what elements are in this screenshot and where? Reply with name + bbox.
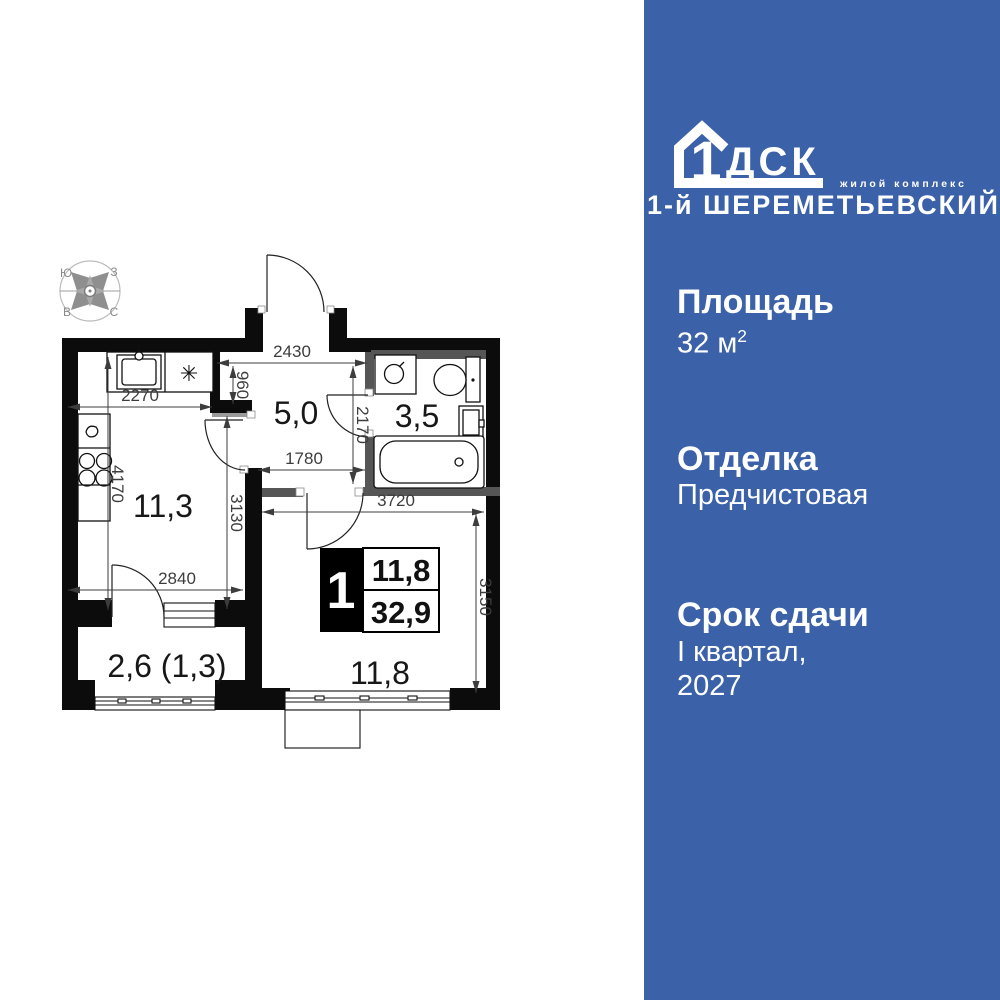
logo-one: 1 — [690, 129, 721, 192]
developer-logo: 1 ДСК жилой комплекс 1-й ШЕРЕМЕТЬЕВСКИЙ — [644, 120, 1000, 232]
logo-letters: ДСК — [726, 140, 820, 184]
room-label-bathroom: 3,5 — [395, 398, 439, 434]
dim-kitchen-bottom-width: 2840 — [158, 569, 196, 588]
entrance-door — [267, 255, 324, 312]
compass-icon: Ю З В С — [60, 261, 120, 321]
compass-sw: В — [63, 305, 71, 319]
dim-hall-top-width: 2430 — [273, 342, 311, 361]
dim-kitchen-height: 4170 — [108, 465, 127, 503]
dim-hall-height: 3130 — [227, 494, 246, 532]
floor-plan: ✳ — [0, 0, 644, 1000]
balcony-inner-window — [164, 603, 215, 627]
window-ledge — [285, 710, 360, 748]
finish-label: Отделка — [677, 441, 818, 478]
dim-kitchen-width: 2270 — [121, 386, 159, 405]
washbasin-icon — [459, 406, 484, 439]
dim-living-height: 3150 — [476, 578, 495, 616]
room-label-living: 11,8 — [350, 655, 410, 691]
toilet-icon — [434, 357, 480, 402]
compass-nw: Ю — [60, 266, 72, 280]
apartment-badge: 1 11,8 32,9 — [320, 548, 439, 632]
dim-bath-height: 2170 — [353, 406, 372, 444]
area-value: 32 м2 — [677, 326, 747, 361]
badge-total-area: 32,9 — [371, 595, 431, 630]
compass-se: С — [110, 305, 119, 319]
kitchen-door — [205, 420, 245, 470]
dim-hall-width: 1780 — [285, 449, 323, 468]
dim-living-width: 3720 — [377, 491, 415, 510]
badge-room-area: 11,8 — [372, 553, 431, 588]
area-label: Площадь — [677, 284, 834, 321]
area-value-sup: 2 — [737, 326, 747, 346]
living-room-door — [307, 493, 363, 549]
bathtub-icon — [374, 436, 484, 488]
compass-ne: З — [110, 265, 117, 279]
room-label-kitchen: 11,3 — [133, 488, 193, 524]
fridge-icon: ✳ — [180, 361, 198, 386]
washing-machine-icon — [375, 355, 416, 394]
deadline-value-line2: 2027 — [677, 670, 742, 703]
room-label-balcony: 2,6 (1,3) — [107, 648, 226, 684]
logo-tagline: жилой комплекс — [839, 178, 967, 190]
screenshot: ✳ — [0, 0, 1000, 1000]
badge-rooms-count: 1 — [327, 562, 356, 620]
deadline-label: Срок сдачи — [677, 597, 869, 634]
info-panel: 1 ДСК жилой комплекс 1-й ШЕРЕМЕТЬЕВСКИЙ … — [644, 0, 1000, 1000]
deadline-value-line1: I квартал, — [677, 636, 807, 669]
finish-value: Предчистовая — [677, 479, 868, 512]
area-value-text: 32 м — [677, 328, 737, 360]
room-label-hallway: 5,0 — [274, 395, 318, 431]
balcony-door — [112, 565, 164, 617]
dim-niche-depth: 960 — [233, 371, 252, 399]
logo-complex-name: 1-й ШЕРЕМЕТЬЕВСКИЙ — [647, 189, 1000, 220]
